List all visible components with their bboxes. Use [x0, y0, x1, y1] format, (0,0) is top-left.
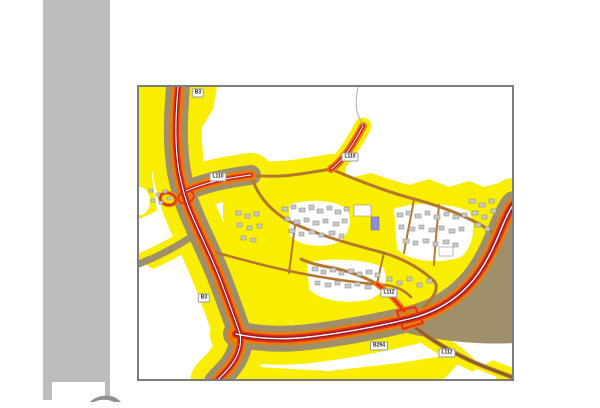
noise-map-panel[interactable]: B3L110L110L112B3B294L112 [137, 85, 514, 381]
sidebar-panel [43, 0, 110, 400]
public-building [371, 217, 379, 230]
map-canvas [139, 87, 512, 379]
swoosh-logo-icon [88, 390, 122, 400]
screen: { "window": { "width": 600, "height": 40… [0, 0, 600, 400]
